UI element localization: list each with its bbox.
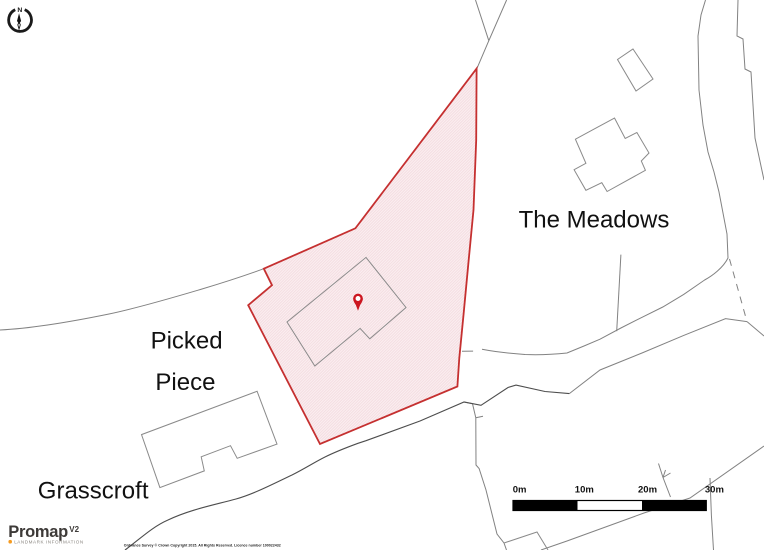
svg-text:Grasscroft: Grasscroft [38,478,149,505]
svg-text:LANDMARK INFORMATION: LANDMARK INFORMATION [14,540,84,545]
svg-text:20m: 20m [638,485,657,496]
svg-text:Ordnance Survey © Crown Copyri: Ordnance Survey © Crown Copyright 2015. … [124,543,281,547]
svg-text:Picked: Picked [151,328,223,355]
svg-text:Piece: Piece [155,369,215,396]
svg-text:10m: 10m [575,485,594,496]
svg-text:30m: 30m [705,485,724,496]
svg-text:V2: V2 [69,525,79,534]
svg-text:0m: 0m [513,485,527,496]
svg-text:Promap: Promap [8,523,68,541]
svg-text:The Meadows: The Meadows [519,207,670,234]
svg-text:N: N [17,7,22,14]
